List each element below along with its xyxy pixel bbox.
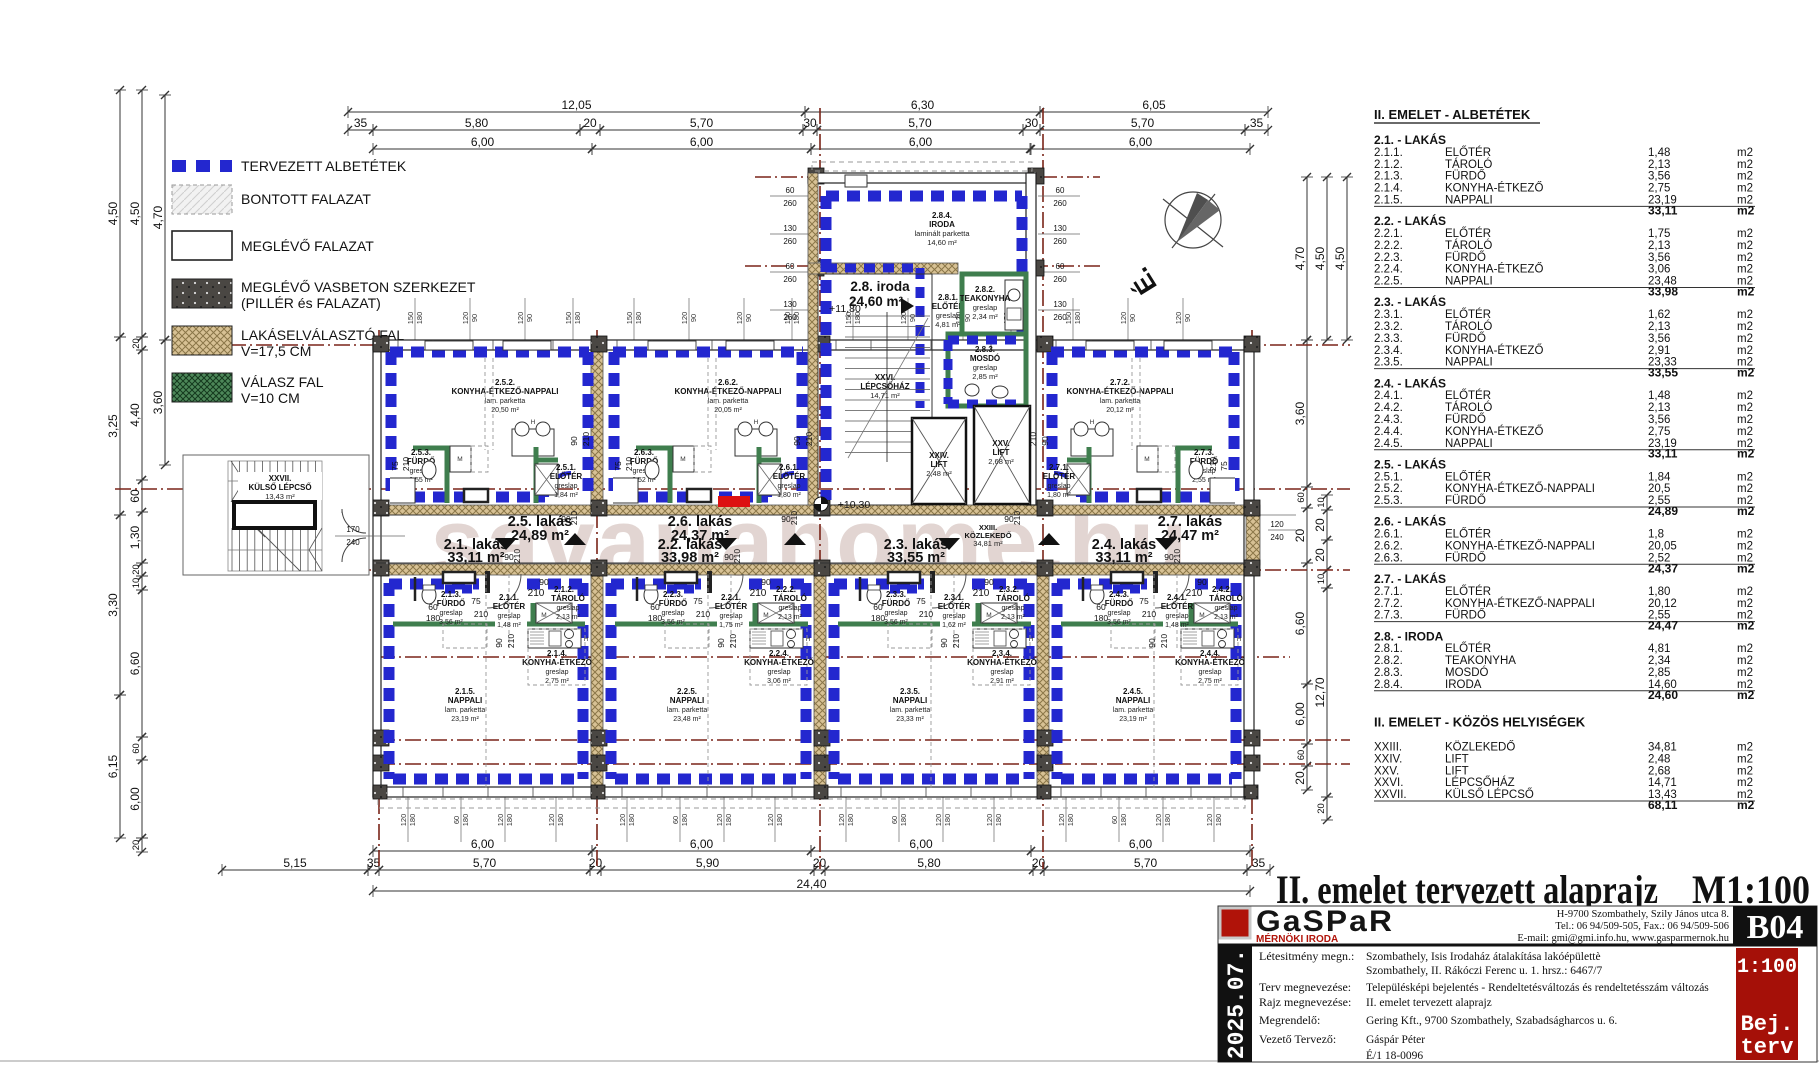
svg-text:90: 90 — [1197, 577, 1207, 587]
svg-text:180: 180 — [994, 814, 1003, 827]
svg-text:2,13 m²: 2,13 m² — [1214, 614, 1238, 621]
svg-text:2,13 m²: 2,13 m² — [778, 614, 802, 621]
svg-text:H: H — [806, 636, 811, 643]
svg-text:4,70: 4,70 — [1293, 246, 1307, 270]
svg-text:90: 90 — [494, 638, 504, 648]
svg-text:120: 120 — [461, 312, 470, 325]
svg-text:greslap: greslap — [1108, 610, 1131, 617]
svg-text:6,00: 6,00 — [909, 837, 933, 851]
svg-text:V=17,5 CM: V=17,5 CM — [241, 343, 311, 359]
svg-text:2,13: 2,13 — [1648, 402, 1670, 414]
svg-text:3,56 m²: 3,56 m² — [884, 619, 908, 626]
svg-text:60: 60 — [1056, 262, 1065, 271]
svg-text:2.3.2.: 2.3.2. — [1374, 321, 1403, 333]
svg-text:3,25: 3,25 — [106, 414, 120, 438]
svg-text:M: M — [680, 456, 685, 463]
svg-text:260: 260 — [783, 199, 797, 208]
svg-text:greslap: greslap — [768, 669, 791, 676]
svg-text:2.8.3.: 2.8.3. — [1374, 667, 1403, 679]
svg-text:TÁROLÓ: TÁROLÓ — [1445, 401, 1492, 414]
svg-text:m2: m2 — [1737, 688, 1755, 702]
svg-text:260: 260 — [1053, 313, 1067, 322]
svg-text:ELŐTÉR: ELŐTÉR — [715, 602, 748, 611]
svg-text:KONYHA-ÉTKEZŐ: KONYHA-ÉTKEZŐ — [1175, 658, 1245, 667]
svg-text:greslap: greslap — [943, 613, 966, 620]
svg-text:2.8.2.: 2.8.2. — [975, 285, 995, 294]
svg-text:150: 150 — [625, 312, 634, 325]
svg-text:LÉPCSŐHÁZ: LÉPCSŐHÁZ — [860, 382, 909, 391]
svg-text:5,80: 5,80 — [917, 856, 941, 870]
svg-text:33,98: 33,98 — [1648, 285, 1678, 299]
svg-text:3,56 m²: 3,56 m² — [439, 619, 463, 626]
svg-text:90: 90 — [1183, 314, 1192, 322]
svg-text:60: 60 — [786, 262, 795, 271]
svg-text:60: 60 — [890, 816, 899, 824]
svg-text:24,47: 24,47 — [1648, 619, 1678, 633]
svg-text:20,05 m²: 20,05 m² — [714, 407, 742, 414]
svg-text:VÁLASZ FAL: VÁLASZ FAL — [241, 374, 324, 390]
svg-text:210: 210 — [506, 634, 516, 648]
svg-text:180: 180 — [1163, 814, 1172, 827]
svg-text:Vezető Tervező:: Vezető Tervező: — [1259, 1032, 1336, 1046]
svg-text:2.5.2.: 2.5.2. — [495, 378, 515, 387]
svg-text:lam. parketta: lam. parketta — [890, 707, 931, 714]
svg-text:2.1.5.: 2.1.5. — [1374, 195, 1403, 207]
svg-text:greslap: greslap — [1048, 483, 1071, 490]
svg-text:180: 180 — [461, 814, 470, 827]
svg-text:XXV.: XXV. — [992, 439, 1010, 448]
svg-text:2.4. - LAKÁS: 2.4. - LAKÁS — [1374, 375, 1446, 390]
svg-text:KONYHA-ÉTKEZŐ: KONYHA-ÉTKEZŐ — [1445, 424, 1543, 438]
svg-text:10: 10 — [1316, 574, 1327, 585]
svg-text:greslap: greslap — [546, 669, 569, 676]
svg-text:90: 90 — [792, 436, 802, 446]
svg-text:180: 180 — [573, 312, 582, 325]
svg-text:240: 240 — [346, 538, 360, 547]
svg-text:KONYHA-ÉTKEZŐ-NAPPALI: KONYHA-ÉTKEZŐ-NAPPALI — [1067, 387, 1174, 396]
svg-text:35: 35 — [1250, 116, 1264, 130]
svg-text:2.1.3.: 2.1.3. — [1374, 171, 1403, 183]
svg-text:4,81: 4,81 — [1648, 643, 1670, 655]
svg-text:2.6.1.: 2.6.1. — [779, 463, 799, 472]
svg-text:14,71: 14,71 — [1648, 777, 1677, 789]
svg-text:KONYHA-ÉTKEZŐ: KONYHA-ÉTKEZŐ — [967, 658, 1037, 667]
svg-text:5,70: 5,70 — [473, 856, 497, 870]
svg-text:greslap: greslap — [557, 605, 580, 612]
svg-text:60: 60 — [873, 602, 883, 612]
svg-text:lam. parketta: lam. parketta — [667, 707, 708, 714]
svg-text:75: 75 — [916, 596, 926, 606]
svg-text:2.7.3.: 2.7.3. — [1374, 610, 1403, 622]
svg-text:120: 120 — [715, 814, 724, 827]
svg-text:120: 120 — [934, 814, 943, 827]
svg-text:180: 180 — [1073, 312, 1082, 325]
svg-text:2.8.3.: 2.8.3. — [975, 345, 995, 354]
svg-text:2.5.1.: 2.5.1. — [1374, 471, 1403, 483]
svg-text:75: 75 — [390, 461, 400, 471]
svg-text:180: 180 — [1214, 814, 1223, 827]
svg-text:greslap: greslap — [779, 605, 802, 612]
svg-text:1,75: 1,75 — [1648, 228, 1670, 240]
svg-text:XXVI.: XXVI. — [1374, 777, 1403, 789]
svg-text:M: M — [1199, 612, 1204, 619]
svg-text:120: 120 — [1205, 814, 1214, 827]
svg-text:2.5.2.: 2.5.2. — [1374, 483, 1403, 495]
svg-text:120: 120 — [1270, 520, 1284, 529]
svg-text:210: 210 — [728, 634, 738, 648]
svg-text:3,06: 3,06 — [1648, 264, 1670, 276]
svg-text:V=10 CM: V=10 CM — [241, 390, 300, 406]
svg-text:20: 20 — [1316, 803, 1327, 814]
svg-text:12,05: 12,05 — [561, 98, 591, 112]
svg-text:5,70: 5,70 — [1131, 116, 1155, 130]
svg-text:m2: m2 — [1737, 390, 1753, 402]
svg-text:2.1.1.: 2.1.1. — [499, 593, 519, 602]
svg-text:4,50: 4,50 — [128, 201, 142, 225]
svg-text:2.1.2.: 2.1.2. — [1374, 159, 1403, 171]
svg-text:2,48: 2,48 — [1648, 753, 1670, 765]
svg-text:2.3. - LAKÁS: 2.3. - LAKÁS — [1374, 294, 1446, 309]
svg-text:2.8.1.: 2.8.1. — [938, 293, 958, 302]
svg-text:TÁROLÓ: TÁROLÓ — [1445, 320, 1492, 333]
svg-text:180: 180 — [415, 312, 424, 325]
svg-text:XXVI.: XXVI. — [875, 373, 895, 382]
svg-text:2.8. - IRODA: 2.8. - IRODA — [1374, 629, 1444, 643]
svg-text:75: 75 — [1219, 461, 1229, 471]
svg-text:60: 60 — [650, 602, 660, 612]
svg-text:60: 60 — [671, 816, 680, 824]
svg-text:IRODA: IRODA — [929, 220, 955, 229]
svg-text:ELŐTÉR: ELŐTÉR — [493, 602, 526, 611]
svg-text:2,91: 2,91 — [1648, 345, 1670, 357]
svg-text:3,56: 3,56 — [1648, 414, 1670, 426]
svg-text:2.4.3.: 2.4.3. — [1109, 590, 1129, 599]
svg-text:210: 210 — [951, 634, 961, 648]
svg-text:210: 210 — [512, 549, 522, 563]
svg-text:30: 30 — [803, 116, 817, 130]
svg-text:2.8.4.: 2.8.4. — [932, 211, 952, 220]
svg-text:Rajz megnevezése:: Rajz megnevezése: — [1259, 995, 1351, 1009]
svg-text:120: 120 — [766, 814, 775, 827]
svg-text:120: 120 — [399, 814, 408, 827]
svg-text:laminált parketta: laminált parketta — [914, 229, 970, 238]
svg-text:6,00: 6,00 — [1293, 702, 1307, 726]
svg-text:24,60: 24,60 — [1648, 688, 1678, 702]
svg-text:2,13: 2,13 — [1648, 159, 1670, 171]
svg-text:4,50: 4,50 — [106, 201, 120, 225]
svg-text:2.4.3.: 2.4.3. — [1374, 414, 1403, 426]
svg-text:180: 180 — [1094, 613, 1108, 623]
svg-text:20,12: 20,12 — [1648, 598, 1677, 610]
svg-text:260: 260 — [1053, 237, 1067, 246]
svg-text:Bej.: Bej. — [1741, 1012, 1794, 1037]
svg-text:210: 210 — [581, 432, 591, 446]
svg-text:FÜRDŐ: FÜRDŐ — [1445, 169, 1486, 183]
svg-text:6,05: 6,05 — [1142, 98, 1166, 112]
svg-text:180: 180 — [505, 814, 514, 827]
svg-text:33,11 m²: 33,11 m² — [447, 550, 504, 566]
svg-text:90: 90 — [744, 314, 753, 322]
svg-text:33,55: 33,55 — [1648, 366, 1678, 380]
svg-text:2,75 m²: 2,75 m² — [1198, 678, 1222, 685]
svg-text:H: H — [531, 419, 536, 426]
svg-text:90: 90 — [539, 577, 549, 587]
svg-text:34,81 m²: 34,81 m² — [973, 539, 1003, 548]
svg-text:greslap: greslap — [991, 669, 1014, 676]
svg-text:2.6.3.: 2.6.3. — [1374, 552, 1403, 564]
svg-text:lam. parketta: lam. parketta — [1100, 398, 1141, 405]
svg-text:6,60: 6,60 — [128, 651, 142, 675]
svg-text:12,70: 12,70 — [1313, 677, 1327, 707]
svg-text:2,13 m²: 2,13 m² — [556, 614, 580, 621]
svg-text:170: 170 — [346, 525, 360, 534]
svg-text:60: 60 — [1296, 750, 1307, 761]
svg-text:XXV.: XXV. — [1374, 765, 1399, 777]
svg-text:+11,80: +11,80 — [829, 303, 861, 315]
svg-text:Tel.: 06 94/509-505, Fax.: 06: Tel.: 06 94/509-505, Fax.: 06 94/509-506 — [1555, 921, 1729, 932]
svg-text:90: 90 — [525, 314, 534, 322]
svg-text:ELŐTÉR: ELŐTÉR — [1161, 602, 1194, 611]
svg-text:210: 210 — [474, 609, 488, 619]
svg-text:KONYHA-ÉTKEZŐ-NAPPALI: KONYHA-ÉTKEZŐ-NAPPALI — [675, 387, 782, 396]
svg-text:3,60: 3,60 — [1293, 401, 1307, 425]
svg-text:m2: m2 — [1737, 667, 1753, 679]
svg-text:KONYHA-ÉTKEZŐ: KONYHA-ÉTKEZŐ — [744, 658, 814, 667]
svg-text:2.7.1.: 2.7.1. — [1374, 586, 1403, 598]
svg-text:130: 130 — [783, 300, 797, 309]
svg-text:60: 60 — [428, 602, 438, 612]
svg-text:greslap: greslap — [885, 610, 908, 617]
svg-text:210: 210 — [528, 588, 545, 599]
svg-text:180: 180 — [1119, 814, 1128, 827]
svg-text:4,50: 4,50 — [1333, 246, 1347, 270]
svg-text:m2: m2 — [1737, 252, 1753, 264]
svg-text:KONYHA-ÉTKEZŐ-NAPPALI: KONYHA-ÉTKEZŐ-NAPPALI — [1445, 481, 1595, 495]
svg-text:greslap: greslap — [1002, 605, 1025, 612]
svg-text:XXIII.: XXIII. — [1374, 742, 1402, 754]
svg-text:LÉPCSŐHÁZ: LÉPCSŐHÁZ — [1445, 775, 1515, 789]
svg-text:ELŐTÉR: ELŐTÉR — [1445, 226, 1491, 240]
svg-text:60: 60 — [1296, 492, 1307, 503]
svg-text:2.4.2.: 2.4.2. — [1374, 402, 1403, 414]
svg-text:10: 10 — [1316, 497, 1327, 508]
svg-text:FÜRDŐ: FÜRDŐ — [1445, 412, 1486, 426]
svg-text:MÉRNÖKI IRODA: MÉRNÖKI IRODA — [1256, 932, 1338, 945]
svg-text:H: H — [1029, 636, 1034, 643]
svg-text:NAPPALI: NAPPALI — [893, 696, 928, 705]
svg-text:2.6.2.: 2.6.2. — [718, 378, 738, 387]
svg-text:20: 20 — [131, 338, 142, 349]
svg-text:20: 20 — [589, 856, 603, 870]
svg-text:1,48 m²: 1,48 m² — [1165, 622, 1189, 629]
svg-text:210: 210 — [1208, 457, 1218, 471]
svg-text:5,15: 5,15 — [283, 856, 307, 870]
svg-text:2.2.5.: 2.2.5. — [1374, 276, 1403, 288]
svg-text:greslap: greslap — [662, 610, 685, 617]
svg-text:6,00: 6,00 — [909, 135, 933, 149]
svg-text:33,11: 33,11 — [1648, 447, 1678, 461]
svg-text:5,80: 5,80 — [465, 116, 489, 130]
svg-text:II. emelet tervezett alaprajz: II. emelet tervezett alaprajz — [1366, 997, 1492, 1009]
svg-text:5,90: 5,90 — [696, 856, 720, 870]
svg-text:m2: m2 — [1737, 598, 1753, 610]
svg-text:90: 90 — [689, 314, 698, 322]
svg-text:M: M — [457, 456, 462, 463]
svg-text:130: 130 — [1053, 224, 1067, 233]
svg-text:14,71 m²: 14,71 m² — [870, 391, 900, 400]
svg-text:XXIV.: XXIV. — [1374, 753, 1402, 765]
svg-text:180: 180 — [943, 814, 952, 827]
svg-text:(PILLÉR és FALAZAT): (PILLÉR és FALAZAT) — [241, 295, 381, 311]
svg-text:90: 90 — [470, 314, 479, 322]
svg-text:35: 35 — [354, 116, 368, 130]
svg-text:LIFT: LIFT — [993, 448, 1010, 457]
svg-text:75: 75 — [613, 461, 623, 471]
svg-text:260: 260 — [1053, 199, 1067, 208]
svg-text:2.2.5.: 2.2.5. — [677, 687, 697, 696]
svg-text:NAPPALI: NAPPALI — [1445, 438, 1493, 450]
svg-text:20: 20 — [1293, 771, 1307, 785]
svg-text:Településképi bejelentés - Ren: Településképi bejelentés - Rendeltetésvá… — [1366, 982, 1709, 994]
svg-text:260: 260 — [1053, 275, 1067, 284]
svg-text:2.4.1.: 2.4.1. — [1167, 593, 1187, 602]
svg-text:2.2.3.: 2.2.3. — [1374, 252, 1403, 264]
svg-text:3,56: 3,56 — [1648, 171, 1670, 183]
svg-text:m2: m2 — [1737, 285, 1755, 299]
svg-text:2.5.3.: 2.5.3. — [411, 448, 431, 457]
svg-text:m2: m2 — [1737, 777, 1753, 789]
svg-text:75: 75 — [1139, 596, 1149, 606]
svg-text:180: 180 — [426, 613, 440, 623]
svg-text:FÜRDŐ: FÜRDŐ — [1445, 608, 1486, 622]
svg-text:NAPPALI: NAPPALI — [670, 696, 705, 705]
svg-text:14,60 m²: 14,60 m² — [927, 238, 957, 247]
svg-text:180: 180 — [556, 814, 565, 827]
svg-text:m2: m2 — [1737, 561, 1755, 575]
svg-text:180: 180 — [627, 814, 636, 827]
svg-text:120: 120 — [618, 814, 627, 827]
svg-text:210: 210 — [1159, 634, 1169, 648]
svg-text:lam. parketta: lam. parketta — [445, 707, 486, 714]
svg-text:180: 180 — [1066, 814, 1075, 827]
svg-text:210: 210 — [732, 549, 742, 563]
svg-text:2.8.1.: 2.8.1. — [1374, 643, 1403, 655]
svg-text:90: 90 — [569, 436, 579, 446]
svg-text:120: 120 — [1154, 814, 1163, 827]
svg-text:H: H — [584, 636, 589, 643]
svg-text:2.3.1.: 2.3.1. — [944, 593, 964, 602]
svg-text:m2: m2 — [1737, 240, 1753, 252]
svg-text:m2: m2 — [1737, 765, 1753, 777]
svg-text:KONYHA-ÉTKEZŐ: KONYHA-ÉTKEZŐ — [1445, 343, 1543, 357]
svg-text:2.2.2.: 2.2.2. — [776, 585, 796, 594]
svg-text:5,70: 5,70 — [908, 116, 932, 130]
svg-text:Gáspár Péter: Gáspár Péter — [1366, 1034, 1425, 1046]
svg-text:3,30: 3,30 — [106, 593, 120, 617]
svg-text:260: 260 — [783, 275, 797, 284]
svg-text:XXVII.: XXVII. — [269, 474, 292, 483]
svg-text:2.1.4.: 2.1.4. — [547, 649, 567, 658]
svg-text:2,13: 2,13 — [1648, 321, 1670, 333]
svg-text:3,60: 3,60 — [151, 390, 165, 414]
svg-text:210: 210 — [624, 457, 634, 471]
svg-text:30: 30 — [1025, 116, 1039, 130]
svg-text:greslap: greslap — [1215, 605, 1238, 612]
svg-text:2.3.4.: 2.3.4. — [992, 649, 1012, 658]
svg-text:5,70: 5,70 — [690, 116, 714, 130]
svg-text:3,56 m²: 3,56 m² — [1107, 619, 1131, 626]
svg-text:210: 210 — [1142, 609, 1156, 619]
svg-text:2.4.4.: 2.4.4. — [1374, 426, 1403, 438]
svg-text:LIFT: LIFT — [931, 460, 948, 469]
svg-text:m2: m2 — [1737, 529, 1753, 541]
svg-text:2.2.1.: 2.2.1. — [721, 593, 741, 602]
svg-text:Szombathely, II. Rákóczi Feren: Szombathely, II. Rákóczi Ferenc u. 1. hr… — [1366, 965, 1602, 977]
svg-text:LIFT: LIFT — [1445, 753, 1469, 765]
svg-text:2.1. - LAKÁS: 2.1. - LAKÁS — [1374, 132, 1446, 147]
svg-text:23,48 m²: 23,48 m² — [673, 716, 701, 723]
svg-text:TÁROLÓ: TÁROLÓ — [1445, 239, 1492, 252]
svg-text:2,75: 2,75 — [1648, 183, 1670, 195]
svg-text:90: 90 — [1040, 436, 1050, 446]
svg-text:2.7.1.: 2.7.1. — [1049, 463, 1069, 472]
svg-text:24,37: 24,37 — [1648, 561, 1678, 575]
svg-text:FÜRDŐ: FÜRDŐ — [659, 599, 687, 608]
svg-text:greslap: greslap — [936, 311, 961, 320]
svg-text:20: 20 — [131, 564, 142, 575]
svg-text:23,33 m²: 23,33 m² — [896, 716, 924, 723]
svg-text:20,50 m²: 20,50 m² — [491, 407, 519, 414]
svg-text:II. EMELET - ALBETÉTEK: II. EMELET - ALBETÉTEK — [1374, 107, 1531, 122]
svg-text:210: 210 — [789, 511, 799, 525]
svg-text:2.8.2.: 2.8.2. — [1374, 655, 1403, 667]
svg-text:120: 120 — [899, 312, 908, 325]
svg-text:Megrendelő:: Megrendelő: — [1259, 1013, 1320, 1027]
svg-text:greslap: greslap — [498, 613, 521, 620]
svg-text:FÜRDŐ: FÜRDŐ — [437, 599, 465, 608]
svg-text:TEAKONYHA: TEAKONYHA — [1445, 655, 1516, 667]
svg-text:2.4.1.: 2.4.1. — [1374, 390, 1403, 402]
svg-text:MEGLÉVŐ FALAZAT: MEGLÉVŐ FALAZAT — [241, 238, 374, 254]
svg-text:2.3.3.: 2.3.3. — [886, 590, 906, 599]
svg-text:TÁROLÓ: TÁROLÓ — [1209, 594, 1243, 603]
svg-text:TÁROLÓ: TÁROLÓ — [996, 594, 1030, 603]
svg-text:NAPPALI: NAPPALI — [1445, 276, 1493, 288]
svg-text:24,89 m²: 24,89 m² — [511, 528, 569, 544]
svg-text:90: 90 — [1147, 638, 1157, 648]
svg-text:2.1.1.: 2.1.1. — [1374, 147, 1403, 159]
svg-text:75: 75 — [471, 596, 481, 606]
svg-text:2,13 m²: 2,13 m² — [1001, 614, 1025, 621]
svg-text:90: 90 — [1128, 314, 1137, 322]
svg-text:210: 210 — [401, 457, 411, 471]
svg-text:60: 60 — [1056, 186, 1065, 195]
svg-text:1,48 m²: 1,48 m² — [497, 622, 521, 629]
svg-text:24,40: 24,40 — [796, 877, 826, 891]
svg-text:2.5. - LAKÁS: 2.5. - LAKÁS — [1374, 456, 1446, 471]
svg-text:II. EMELET - KÖZÖS HELYISÉGEK: II. EMELET - KÖZÖS HELYISÉGEK — [1374, 715, 1586, 730]
svg-text:120: 120 — [1057, 814, 1066, 827]
svg-text:60: 60 — [131, 743, 142, 754]
svg-text:33,11 m²: 33,11 m² — [1095, 550, 1152, 566]
svg-text:23,19 m²: 23,19 m² — [451, 716, 479, 723]
svg-text:260: 260 — [783, 313, 797, 322]
svg-text:180: 180 — [648, 613, 662, 623]
svg-text:ELŐTÉR: ELŐTÉR — [1445, 527, 1491, 541]
svg-text:1:100: 1:100 — [1737, 956, 1797, 979]
svg-text:2.4.2.: 2.4.2. — [1212, 585, 1232, 594]
svg-text:2,85 m²: 2,85 m² — [972, 372, 998, 381]
